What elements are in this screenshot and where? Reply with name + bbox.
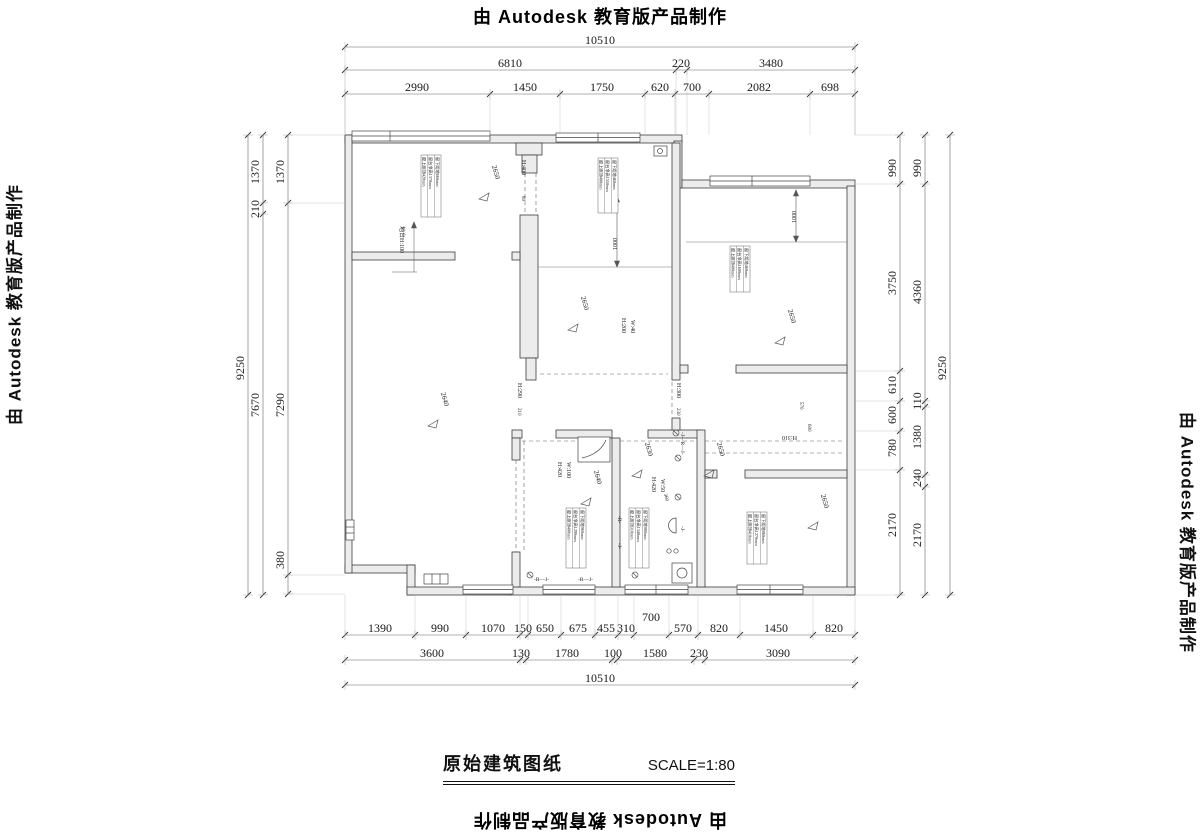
window bbox=[710, 176, 810, 186]
dim-label: 3600 bbox=[420, 646, 444, 660]
plan-annotation: H:420 bbox=[556, 462, 562, 477]
dim-label: 455 bbox=[597, 621, 615, 635]
dim-label: 570 bbox=[674, 621, 692, 635]
meter-box bbox=[654, 146, 667, 156]
dim-label: 675 bbox=[569, 621, 587, 635]
window-note-line: 窗上距顶400mm bbox=[598, 160, 605, 190]
dim-label: 230 bbox=[690, 646, 708, 660]
dim-label: 7670 bbox=[248, 393, 262, 417]
plan-annotation: 80 bbox=[520, 196, 525, 202]
dim-label: 820 bbox=[710, 621, 728, 635]
plan-annotation: W:50 bbox=[659, 479, 665, 492]
plan-annotation: 210 bbox=[516, 408, 521, 416]
dim-label: 1370 bbox=[273, 160, 287, 184]
level-mark: 2650 bbox=[786, 308, 797, 324]
level-mark: 2650 bbox=[579, 295, 590, 311]
dim-label: 1390 bbox=[368, 621, 392, 635]
dim-label: 150 bbox=[514, 621, 532, 635]
dim-label: 1780 bbox=[555, 646, 579, 660]
sink bbox=[672, 563, 692, 583]
plan-annotation: -R—J- bbox=[534, 577, 549, 583]
dim-label: 220 bbox=[672, 56, 690, 70]
beam-lines bbox=[538, 242, 847, 267]
plan-annotation: H:200 bbox=[620, 318, 626, 333]
level-triangle bbox=[568, 324, 578, 332]
dim-label: 6810 bbox=[498, 56, 522, 70]
dim-label: 1450 bbox=[513, 80, 537, 94]
drawing-sheet: 由 Autodesk 教育版产品制作 由 Autodesk 教育版产品制作 由 … bbox=[0, 0, 1200, 839]
level-mark: 2640 bbox=[439, 391, 450, 407]
window bbox=[737, 585, 803, 594]
plan-annotation: H:420 bbox=[650, 477, 656, 492]
dim-label: 3750 bbox=[885, 271, 899, 295]
plan-annotation: 230 bbox=[675, 408, 680, 416]
dim-label: 2082 bbox=[747, 80, 771, 94]
plan-annotation: -J- bbox=[616, 543, 622, 549]
dim-label: 990 bbox=[910, 159, 924, 177]
plan-annotation: 360 bbox=[662, 493, 669, 502]
dim-label: 310 bbox=[617, 621, 635, 635]
dim-label: 1370 bbox=[248, 160, 262, 184]
plan-annotation: H:290 bbox=[516, 383, 522, 398]
level-triangle bbox=[479, 193, 489, 201]
dim-label: 9250 bbox=[233, 356, 247, 380]
dim-label: 210 bbox=[248, 200, 262, 218]
window-note-line: 窗下距地980mm bbox=[642, 510, 649, 540]
toilet bbox=[667, 518, 678, 553]
level-triangle bbox=[808, 522, 818, 530]
dim-label: 1750 bbox=[590, 80, 614, 94]
dim-label: 698 bbox=[821, 80, 839, 94]
window-note-line: 窗下距地460mm bbox=[611, 160, 618, 190]
plan-annotation: W:40 bbox=[629, 320, 635, 333]
level-triangle bbox=[775, 337, 785, 345]
plan-annotation: -R- bbox=[616, 516, 622, 524]
dim-label: 820 bbox=[825, 621, 843, 635]
dim-label: 4360 bbox=[910, 280, 924, 304]
window-note-line: 窗台净高1270mm bbox=[753, 514, 760, 546]
window bbox=[543, 585, 595, 594]
plan-annotation: -R—J- bbox=[578, 577, 593, 583]
drawing-scale: SCALE=1:80 bbox=[648, 757, 735, 774]
window-note-line: 窗上距顶400mm bbox=[730, 248, 737, 278]
window-note-line: 窗下距地460mm bbox=[743, 248, 750, 278]
dim-label: 10510 bbox=[585, 671, 615, 685]
dim-label: 650 bbox=[536, 621, 554, 635]
window-note-line: 窗上距顶400mm bbox=[566, 510, 573, 540]
level-triangle bbox=[632, 470, 642, 478]
dim-label: 2170 bbox=[910, 523, 924, 547]
dim-label: 990 bbox=[431, 621, 449, 635]
plan-annotation: -J—R—J- bbox=[679, 432, 685, 455]
dim-label: 1380 bbox=[910, 425, 924, 449]
level-mark: 2650 bbox=[715, 441, 726, 457]
plan-annotation: -J- bbox=[679, 526, 685, 532]
dim-label: 610 bbox=[885, 376, 899, 394]
level-mark: 2650 bbox=[819, 493, 830, 509]
window-note-line: 窗上距顶310mm bbox=[629, 510, 636, 540]
window bbox=[625, 585, 688, 594]
dim-label: 130 bbox=[512, 646, 530, 660]
dim-label: 2990 bbox=[405, 80, 429, 94]
level-mark: 2640 bbox=[592, 469, 603, 485]
plan-annotation: 600 bbox=[806, 424, 811, 432]
window-note-line: 窗台净高1550mm bbox=[604, 160, 611, 192]
drawing-title: 原始建筑图纸 bbox=[443, 750, 563, 776]
plan-annotation: H:400 bbox=[520, 160, 526, 175]
dim-label: 700 bbox=[642, 610, 660, 624]
title-block: 原始建筑图纸 SCALE=1:80 bbox=[443, 750, 735, 785]
dim-label: 7290 bbox=[273, 393, 287, 417]
dim-label: 620 bbox=[651, 80, 669, 94]
level-mark: 2630 bbox=[643, 441, 654, 457]
window-note-line: 窗上距顶410mm bbox=[747, 514, 754, 544]
dim-label: 600 bbox=[885, 406, 899, 424]
window-note-line: 窗上距顶420mm bbox=[421, 157, 428, 187]
level-triangle bbox=[581, 498, 591, 506]
plan-annotation: 1000 bbox=[792, 211, 798, 223]
label-box bbox=[424, 574, 448, 584]
plan-annotation: 地台H:100 bbox=[398, 226, 406, 253]
shower-tray bbox=[578, 437, 610, 462]
dim-label: 3090 bbox=[766, 646, 790, 660]
dim-label: 240 bbox=[910, 469, 924, 487]
plan-annotation: H:310 bbox=[782, 434, 797, 440]
dim-label: 1450 bbox=[764, 621, 788, 635]
plan-annotation: W:100 bbox=[565, 462, 571, 478]
window-note-line: 窗台净高1370mm bbox=[427, 157, 434, 189]
window-note-line: 窗下距地960mm bbox=[579, 510, 586, 540]
level-mark: 2650 bbox=[490, 164, 501, 180]
dim-label: 9250 bbox=[935, 356, 949, 380]
plan-annotation: 570 bbox=[798, 402, 803, 410]
floorplan-canvas: 1051068102203480299014501750620700208269… bbox=[0, 0, 1200, 839]
wall-box bbox=[346, 520, 354, 540]
window bbox=[463, 585, 513, 594]
dim-label: 100 bbox=[604, 646, 622, 660]
dim-label: 990 bbox=[885, 159, 899, 177]
window bbox=[556, 133, 640, 142]
window-note-line: 窗下距地660mm bbox=[434, 157, 441, 187]
level-triangle bbox=[428, 420, 438, 428]
dim-label: 700 bbox=[683, 80, 701, 94]
dim-label: 110 bbox=[910, 392, 924, 410]
dim-label: 1070 bbox=[481, 621, 505, 635]
window-note-line: 窗台净高1290mm bbox=[572, 510, 579, 542]
plan-annotation: 1000 bbox=[613, 238, 619, 250]
window-note-line: 窗台净高1340mm bbox=[635, 510, 642, 542]
dim-label: 10510 bbox=[585, 33, 615, 47]
dim-label: 3480 bbox=[759, 56, 783, 70]
dim-label: 1580 bbox=[643, 646, 667, 660]
window-note-line: 窗台净高1600mm bbox=[736, 248, 743, 280]
plan-annotation: H:300 bbox=[675, 383, 681, 398]
dim-label: 380 bbox=[273, 551, 287, 569]
dim-label: 780 bbox=[885, 439, 899, 457]
window-note-line: 窗下距地860mm bbox=[760, 514, 767, 544]
dim-label: 2170 bbox=[885, 513, 899, 537]
window bbox=[352, 131, 490, 141]
